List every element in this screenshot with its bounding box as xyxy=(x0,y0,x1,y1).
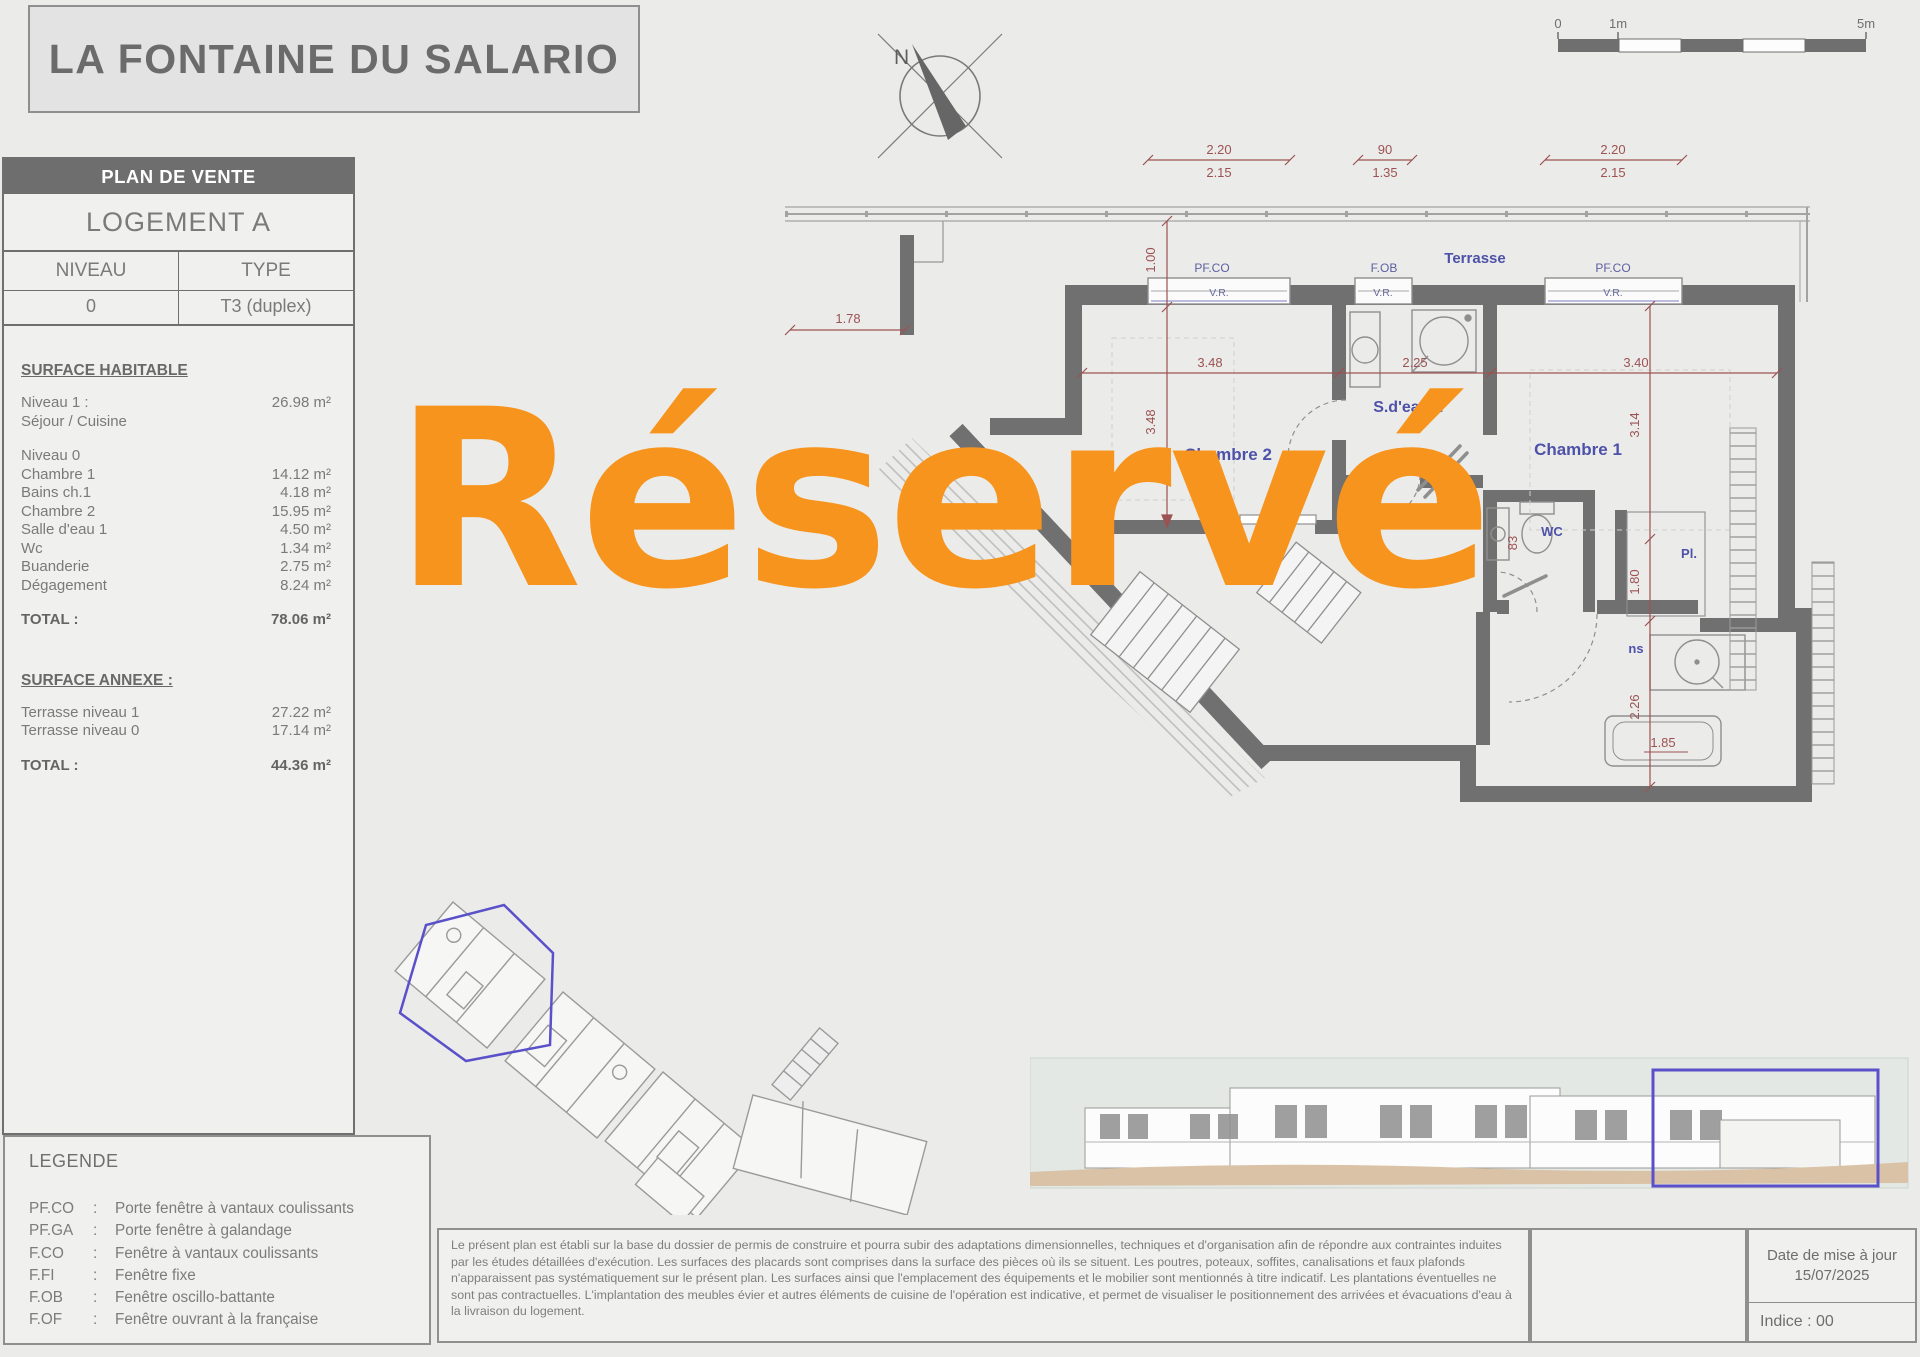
toilet xyxy=(1520,502,1554,514)
surface-annexe-title: SURFACE ANNEXE : xyxy=(21,672,331,690)
scale-bar: 0 1m 5m xyxy=(1548,12,1878,62)
surface-habitable-title: SURFACE HABITABLE xyxy=(21,362,331,380)
elevation-view xyxy=(1030,1050,1910,1205)
svg-text:2.15: 2.15 xyxy=(1600,165,1625,180)
terrasse-label: Terrasse xyxy=(1444,250,1505,267)
annexe-row: Terrasse niveau 127.22 m² xyxy=(21,704,331,723)
wc-label: WC xyxy=(1541,524,1563,539)
surfaces-block: SURFACE HABITABLE Niveau 1 : 26.98 m² Sé… xyxy=(4,326,353,775)
disclaimer-text: Le présent plan est établi sur la base d… xyxy=(451,1238,1512,1318)
date-cell: Date de mise à jour 15/07/2025 xyxy=(1749,1230,1915,1303)
surface-habitable-total: TOTAL : 78.06 m² xyxy=(21,611,331,630)
niveau0-row: Niveau 0 xyxy=(21,447,331,466)
svg-text:83: 83 xyxy=(1505,536,1520,550)
svg-text:1.80: 1.80 xyxy=(1627,569,1642,594)
surface-annexe-total: TOTAL : 44.36 m² xyxy=(21,757,331,776)
room-row: Bains ch.14.18 m² xyxy=(21,484,331,503)
svg-text:90: 90 xyxy=(1378,142,1392,157)
room-row: Chambre 215.95 m² xyxy=(21,503,331,522)
date-box: Date de mise à jour 15/07/2025 Indice : … xyxy=(1747,1228,1917,1343)
svg-text:2.26: 2.26 xyxy=(1627,694,1642,719)
svg-text:1.35: 1.35 xyxy=(1372,165,1397,180)
niveau-type-value-row: 0 T3 (duplex) xyxy=(4,291,353,326)
svg-text:2.20: 2.20 xyxy=(1206,142,1231,157)
legend-title: LEGENDE xyxy=(29,1151,419,1172)
chambre1-label: Chambre 1 xyxy=(1534,440,1622,459)
niveau-type-header-row: NIVEAU TYPE xyxy=(4,252,353,291)
niveau-header: NIVEAU xyxy=(4,252,179,290)
bains-label-fragment: ns xyxy=(1628,641,1643,656)
niveau-value: 0 xyxy=(4,291,179,324)
vr-label: V.R. xyxy=(1603,287,1622,299)
vr-label: V.R. xyxy=(1373,287,1392,299)
room-row: Chambre 114.12 m² xyxy=(21,466,331,485)
placard-right-label: Pl. xyxy=(1681,546,1697,561)
legend-item: PF.CO:Porte fenêtre à vantaux coulissant… xyxy=(29,1198,419,1220)
north-label: N xyxy=(894,46,909,69)
svg-text:1.00: 1.00 xyxy=(1143,247,1158,272)
window-label: PF.CO xyxy=(1194,261,1229,275)
indice-cell: Indice : 00 xyxy=(1749,1303,1915,1341)
window-label: PF.CO xyxy=(1595,261,1630,275)
date-value: 15/07/2025 xyxy=(1794,1266,1869,1286)
svg-text:2.15: 2.15 xyxy=(1206,165,1231,180)
plan-de-vente-header: PLAN DE VENTE xyxy=(4,159,353,194)
legend-item: F.OF:Fenêtre ouvrant à la française xyxy=(29,1309,419,1331)
disclaimer-box: Le présent plan est établi sur la base d… xyxy=(437,1228,1530,1343)
legend-item: F.OB:Fenêtre oscillo-battante xyxy=(29,1287,419,1309)
niveau1-sub-row: Séjour / Cuisine xyxy=(21,413,331,432)
svg-text:1.78: 1.78 xyxy=(835,311,860,326)
legend-item: PF.GA:Porte fenêtre à galandage xyxy=(29,1220,419,1242)
svg-text:2.20: 2.20 xyxy=(1600,142,1625,157)
window-label: F.OB xyxy=(1371,261,1398,275)
annexe-row: Terrasse niveau 017.14 m² xyxy=(21,722,331,741)
north-arrow-icon xyxy=(912,44,966,140)
type-header: TYPE xyxy=(179,252,353,290)
sidebar-panel: PLAN DE VENTE LOGEMENT A NIVEAU TYPE 0 T… xyxy=(2,157,355,1135)
svg-text:3.40: 3.40 xyxy=(1623,355,1648,370)
scale-1m: 1m xyxy=(1609,16,1627,31)
room-row: Buanderie2.75 m² xyxy=(21,558,331,577)
legend-item: F.CO:Fenêtre à vantaux coulissants xyxy=(29,1243,419,1265)
room-row: Wc1.34 m² xyxy=(21,540,331,559)
date-label: Date de mise à jour xyxy=(1767,1246,1897,1266)
scale-0: 0 xyxy=(1554,16,1561,31)
indice-value: Indice : 00 xyxy=(1760,1313,1834,1331)
type-value: T3 (duplex) xyxy=(179,291,353,324)
room-row: Salle d'eau 14.50 m² xyxy=(21,521,331,540)
scale-5m: 5m xyxy=(1857,16,1875,31)
reserved-watermark: Réservé xyxy=(393,378,1490,624)
legend-box: LEGENDE PF.CO:Porte fenêtre à vantaux co… xyxy=(3,1135,431,1345)
svg-text:1.85: 1.85 xyxy=(1650,735,1675,750)
legend-item: F.FI:Fenêtre fixe xyxy=(29,1265,419,1287)
logement-label: LOGEMENT A xyxy=(4,194,353,252)
site-key-plan xyxy=(370,855,970,1215)
empty-footer-cell xyxy=(1530,1228,1747,1343)
plan-de-vente-page: LA FONTAINE DU SALARIO N 0 1m 5m PLAN DE… xyxy=(0,0,1920,1357)
niveau1-row: Niveau 1 : 26.98 m² xyxy=(21,394,331,413)
project-title: LA FONTAINE DU SALARIO xyxy=(49,36,620,83)
project-title-box: LA FONTAINE DU SALARIO xyxy=(28,5,640,113)
vr-label: V.R. xyxy=(1209,287,1228,299)
svg-text:3.14: 3.14 xyxy=(1627,412,1642,437)
room-row: Dégagement8.24 m² xyxy=(21,577,331,596)
